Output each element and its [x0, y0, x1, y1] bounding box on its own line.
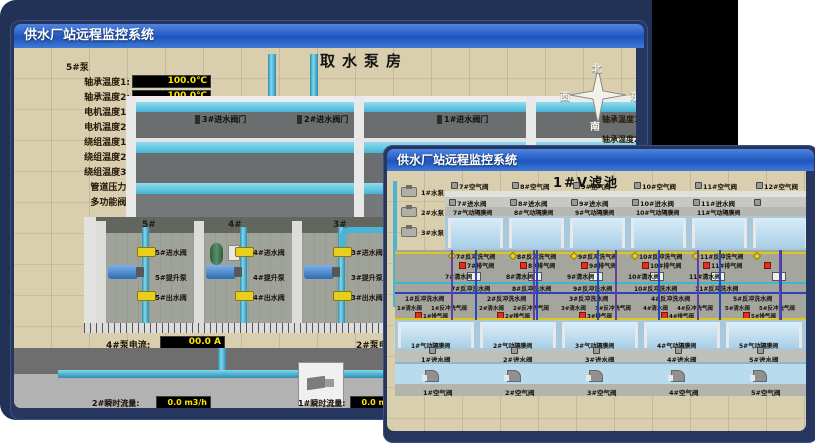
outlet-valve-label: 4#出水阀: [253, 293, 285, 303]
top-cell-air: 12#空气阀: [750, 179, 806, 191]
top-cell-inlet: 10#进水阀: [628, 197, 689, 207]
outflow-branch-pipe: [218, 348, 226, 370]
top-cell-inlet: 7#进水阀: [445, 197, 506, 207]
top-cell-air: 10#空气阀: [628, 179, 689, 191]
compass-south: 南: [590, 118, 600, 133]
top-cell-diaphragm: [750, 207, 806, 216]
cell: 2#空气阀: [477, 384, 559, 396]
cell: 3#进水阀: [559, 350, 641, 362]
cell: 1#进水阀: [395, 350, 477, 362]
cell: [641, 364, 723, 386]
top-cell-diaphragm: 11#气动隔膜阀: [689, 207, 750, 216]
inlet-valve[interactable]: [137, 247, 156, 257]
inlet-valve-icon[interactable]: [593, 347, 600, 354]
pump-bay: 4#进水阀 4#提升泵 4#出水阀: [204, 227, 292, 323]
lift-pump-label: 5#提升泵: [155, 273, 187, 283]
inlet-valve-icon[interactable]: [511, 347, 518, 354]
inlet-valve-icon[interactable]: [693, 199, 700, 206]
back-window-titlebar[interactable]: 供水厂站远程监控系统: [14, 24, 644, 48]
air-valve-label: 11#空气阀: [703, 181, 737, 191]
cell: [395, 250, 477, 320]
inlet-valve-gate[interactable]: 1#进水阀门: [437, 114, 488, 125]
flow2-value: 0.0 m3/h: [156, 396, 211, 408]
inlet-valve-label: 5#进水阀: [155, 248, 187, 258]
wash-pump[interactable]: [401, 227, 417, 237]
air-valve-icon[interactable]: [573, 182, 580, 189]
inlet-valve-label: 4#进水阀: [253, 248, 285, 258]
back-window-title: 供水厂站远程监控系统: [24, 28, 154, 43]
air-valve-label: 9#空气阀: [581, 181, 610, 191]
inlet-valve-icon[interactable]: [449, 199, 456, 206]
air-valve-label: 7#空气阀: [459, 181, 488, 191]
cell: [477, 364, 559, 386]
cell: [559, 250, 641, 320]
inlet-valve-label: 3#进水阀: [351, 248, 383, 258]
outlet-valve[interactable]: [235, 291, 254, 301]
bottom-air-valve-row: 1#空气阀 2#空气阀 3#空气阀 4#空气阀 5#空气阀: [395, 384, 806, 396]
air-valve-label: 12#空气阀: [764, 181, 798, 191]
inlet-valve-gate[interactable]: 3#进水阀门: [195, 114, 246, 125]
filter-pool: [750, 216, 806, 250]
top-cell-diaphragm: 10#气动隔膜阀: [628, 207, 689, 216]
compass-north: 北: [592, 60, 602, 75]
readout-label: 电机温度1:: [40, 105, 130, 118]
top-cell-air: 8#空气阀: [506, 179, 567, 191]
air-valve-icon[interactable]: [451, 182, 458, 189]
pool-water: [631, 218, 686, 248]
readout-label: 绕组温度2:: [40, 150, 130, 163]
compass-east: 东: [630, 88, 636, 103]
filter-pool: 3#气动隔膜阀: [559, 320, 641, 350]
inlet-valve-icon[interactable]: [571, 199, 578, 206]
air-valve-label: 4#空气阀: [669, 387, 698, 397]
air-elbow-fitting[interactable]: [507, 370, 521, 382]
flow2-label: 2#瞬时流量:: [92, 398, 139, 408]
cell: 5#进水阀: [723, 350, 805, 362]
air-elbow-fitting[interactable]: [671, 370, 685, 382]
top-cell-air: 7#空气阀: [445, 179, 506, 191]
front-window-title: 供水厂站远程监控系统: [397, 153, 517, 167]
air-valve-label: 1#空气阀: [423, 387, 452, 397]
air-valve-label: 2#空气阀: [505, 387, 534, 397]
filter-pool: [689, 216, 750, 250]
wash-pump-label: 2#水泵: [421, 207, 444, 217]
inlet-valve-icon[interactable]: [510, 199, 517, 206]
outlet-valve[interactable]: [333, 291, 352, 301]
front-window: 供水厂站远程监控系统 1#V滤池 1#水泵 2#水泵 3#水泵: [383, 145, 815, 443]
filter-pool: 2#气动隔膜阀: [477, 320, 559, 350]
top-cell-air: 9#空气阀: [567, 179, 628, 191]
air-valve-icon[interactable]: [695, 182, 702, 189]
bottom-inlet-valve-row: 1#进水阀 2#进水阀 3#进水阀 4#进水阀 5#进水阀: [395, 350, 806, 362]
cell: [559, 364, 641, 386]
top-air-valve-row: 7#空气阀 8#空气阀 9#空气阀 10#空气阀 11#空气阀 12#空气阀: [445, 179, 806, 191]
pool-water: [448, 218, 503, 248]
inlet-valve[interactable]: [235, 247, 254, 257]
readout-value: 100.0℃: [132, 75, 211, 88]
front-window-titlebar[interactable]: 供水厂站远程监控系统: [387, 149, 814, 171]
bottom-filter-pools: 1#气动隔膜阀 2#气动隔膜阀 3#气动隔膜阀 4#气动隔膜阀 5#气动隔膜阀: [395, 320, 806, 350]
cell: 4#空气阀: [641, 384, 723, 396]
readout-label: 管道压力:: [40, 180, 130, 193]
top-cell-diaphragm: 9#气动隔膜阀: [567, 207, 628, 216]
top-cell-air: 11#空气阀: [689, 179, 750, 191]
cell-pipe: [697, 250, 699, 320]
readout-label: 电机温度2:: [40, 120, 130, 133]
cell: 3#空气阀: [559, 384, 641, 396]
air-valve-label: 5#空气阀: [751, 387, 780, 397]
readout-label: 绕组温度1:: [40, 135, 130, 148]
pool-water: [753, 218, 806, 248]
cell-pipe: [451, 250, 453, 320]
cell: [477, 250, 559, 320]
top-inlet-valve-row: 7#进水阀 8#进水阀 9#进水阀 10#进水阀 11#进水阀: [445, 197, 806, 207]
pool-water: [509, 218, 564, 248]
inlet-valve-icon[interactable]: [757, 347, 764, 354]
white-backdrop-panel: [738, 0, 815, 158]
readout-label: 多功能阀:: [40, 195, 130, 208]
bottom-vertical-pipes: [395, 250, 806, 320]
right-bearing-temp1-label: 轴承温度1:: [602, 114, 636, 125]
inlet-valve-icon[interactable]: [632, 199, 639, 206]
compass-west: 西: [560, 88, 570, 103]
cell-pipe: [615, 250, 617, 320]
readout-label: 轴承温度2:: [40, 90, 130, 103]
top-cell-inlet: 8#进水阀: [506, 197, 567, 207]
flow1-label: 1#瞬时流量:: [298, 398, 345, 408]
top-cell-diaphragm: 7#气动隔膜阀: [445, 207, 506, 216]
wash-pump[interactable]: [401, 207, 417, 217]
filter-pool: [628, 216, 689, 250]
inlet-valve-gate[interactable]: 2#进水阀门: [297, 114, 348, 125]
wash-pump-label: 3#水泵: [421, 227, 444, 237]
top-cell-diaphragm: 8#气动隔膜阀: [506, 207, 567, 216]
filter-pool: 5#气动隔膜阀: [723, 320, 805, 350]
lift-pump[interactable]: [108, 265, 138, 279]
cell: 5#空气阀: [723, 384, 805, 396]
filter-pool: [445, 216, 506, 250]
pump-bay: 5#进水阀 5#提升泵 5#出水阀: [106, 227, 194, 323]
pump-panel-header: 5#泵: [66, 60, 89, 73]
readout-label: 绕组温度3:: [40, 165, 130, 178]
meter-glyph: [307, 376, 325, 391]
cell: 2#进水阀: [477, 350, 559, 362]
air-valve-label: 8#空气阀: [520, 181, 549, 191]
top-cell-inlet: [750, 197, 806, 207]
lift-pump-label: 4#提升泵: [253, 273, 285, 283]
cell: 4#进水阀: [641, 350, 723, 362]
inlet-valve-icon[interactable]: [429, 347, 436, 354]
meter-glyph: [325, 379, 334, 387]
inlet-valve-icon[interactable]: [675, 347, 682, 354]
cell-pipe: [779, 250, 781, 320]
wash-pump[interactable]: [401, 187, 417, 197]
air-valve-label: 10#空气阀: [642, 181, 676, 191]
pool-water: [692, 218, 747, 248]
filter-pool: [506, 216, 567, 250]
inlet-valve-icon[interactable]: [754, 199, 761, 206]
black-backdrop-panel: [652, 0, 738, 147]
filter-scene: 1#V滤池 1#水泵 2#水泵 3#水泵 1#风机: [387, 171, 806, 431]
pool-water: [570, 218, 625, 248]
air-elbow-fitting[interactable]: [425, 370, 439, 382]
cell-pipe: [533, 250, 535, 320]
lift-pump[interactable]: [304, 265, 334, 279]
lift-pump[interactable]: [206, 265, 236, 279]
right-bearing-temp2-label: 轴承温度2:: [602, 134, 636, 145]
readout-label: 轴承温度1:: [40, 75, 130, 88]
top-diaphragm-valve-row: 7#气动隔膜阀 8#气动隔膜阀 9#气动隔膜阀 10#气动隔膜阀 11#气动隔膜…: [445, 207, 806, 216]
lift-pump-label: 3#提升泵: [351, 273, 383, 283]
top-cell-inlet: 11#进水阀: [689, 197, 750, 207]
top-cell-inlet: 9#进水阀: [567, 197, 628, 207]
scene-title: 取水泵房: [320, 50, 408, 71]
filter-pool: [567, 216, 628, 250]
wash-pump-label: 1#水泵: [421, 187, 444, 197]
top-filter-pools: [445, 216, 806, 250]
cell: 1#空气阀: [395, 384, 477, 396]
filter-pool: 1#气动隔膜阀: [395, 320, 477, 350]
air-elbow-fitting[interactable]: [589, 370, 603, 382]
air-valve-icon[interactable]: [634, 182, 641, 189]
cell: [723, 250, 805, 320]
readout-row: 轴承温度1: 100.0℃: [40, 74, 216, 89]
air-valve-icon[interactable]: [756, 182, 763, 189]
inlet-valve[interactable]: [333, 247, 352, 257]
air-valve-label: 3#空气阀: [587, 387, 616, 397]
outlet-valve[interactable]: [137, 291, 156, 301]
cell: [641, 250, 723, 320]
air-elbow-fitting[interactable]: [753, 370, 767, 382]
cell: [395, 364, 477, 386]
desktop-background: 供水厂站远程监控系统 5#泵 轴承温度1: 100.0℃ 轴承温度2: 100.…: [0, 0, 815, 420]
green-tank: [210, 243, 223, 265]
bottom-air-channel: [395, 362, 806, 386]
valve-platform: 7#反冲洗气阀 8#反冲洗气阀 9#反冲洗气阀 10#反冲洗气阀 11#反冲洗气…: [395, 250, 806, 320]
pump-bay: 3#进水阀 3#提升泵 3#出水阀: [302, 227, 390, 323]
outlet-valve-label: 5#出水阀: [155, 293, 187, 303]
cell: [723, 364, 805, 386]
air-valve-icon[interactable]: [512, 182, 519, 189]
filter-pool: 4#气动隔膜阀: [641, 320, 723, 350]
outlet-valve-label: 3#出水阀: [351, 293, 383, 303]
